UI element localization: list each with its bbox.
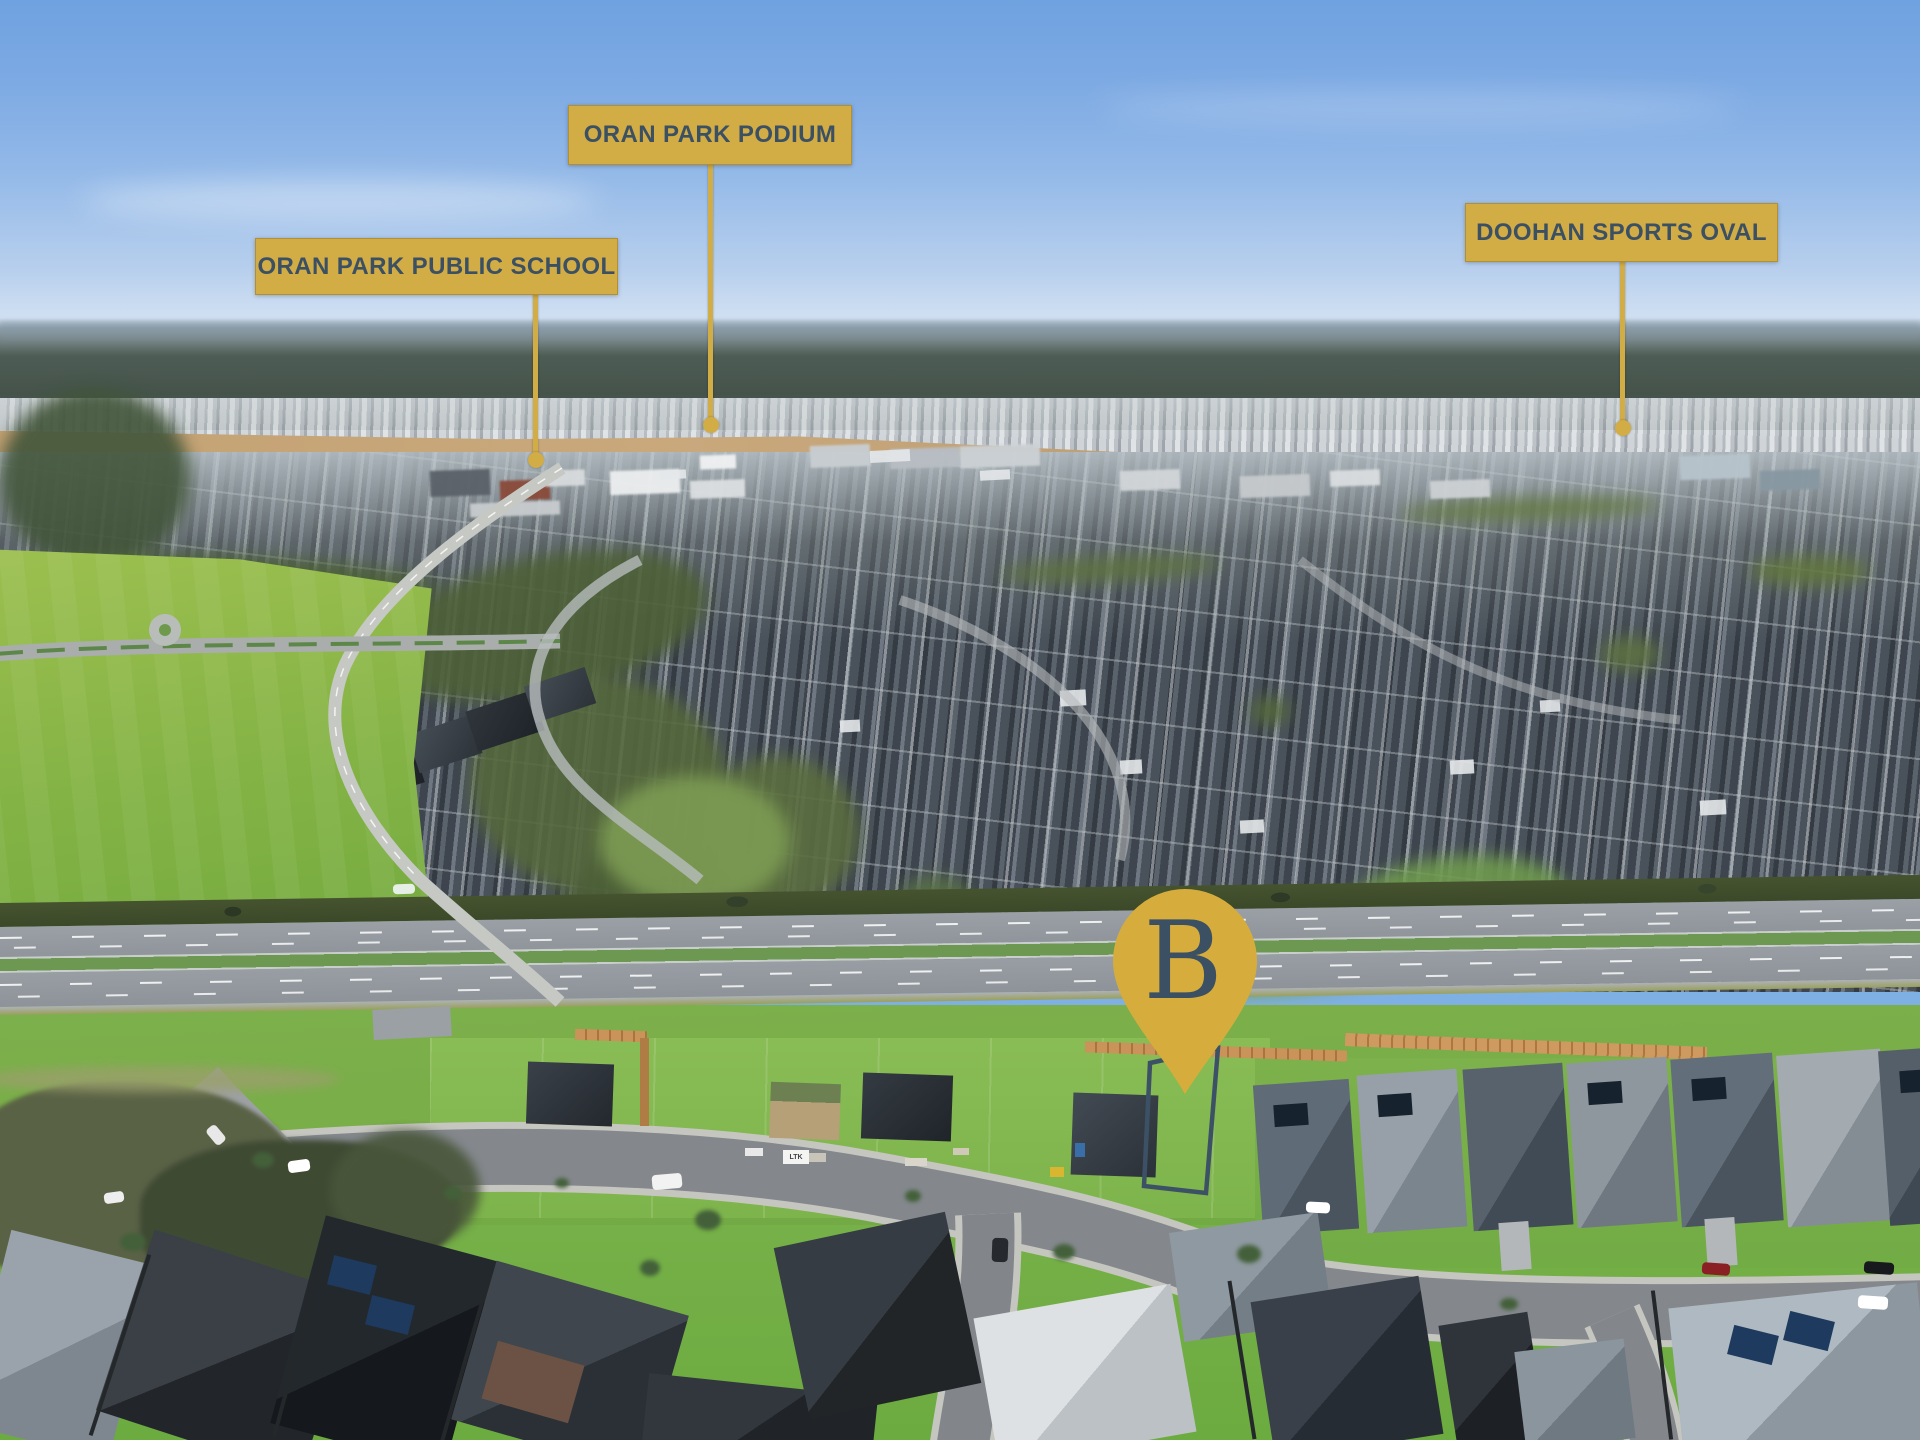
podium-pointer-line <box>708 164 713 418</box>
podium-pointer-dot <box>703 417 719 433</box>
school-pointer-line <box>533 294 538 453</box>
badge-doohan-sports-oval: DOOHAN SPORTS OVAL <box>1465 203 1778 262</box>
oval-pointer-line <box>1620 261 1625 421</box>
badge-oran-park-public-school: ORAN PARK PUBLIC SCHOOL <box>255 238 618 295</box>
aerial-photo: LTK ORAN PARK PODIUM ORAN PARK PUBLIC SC… <box>0 0 1920 1440</box>
badge-oran-park-podium: ORAN PARK PODIUM <box>568 105 852 165</box>
pin-letter: B <box>1143 899 1222 1024</box>
lot-b-map-pin: B <box>1105 882 1265 1097</box>
school-pointer-dot <box>528 452 544 468</box>
oval-pointer-dot <box>1615 420 1631 436</box>
